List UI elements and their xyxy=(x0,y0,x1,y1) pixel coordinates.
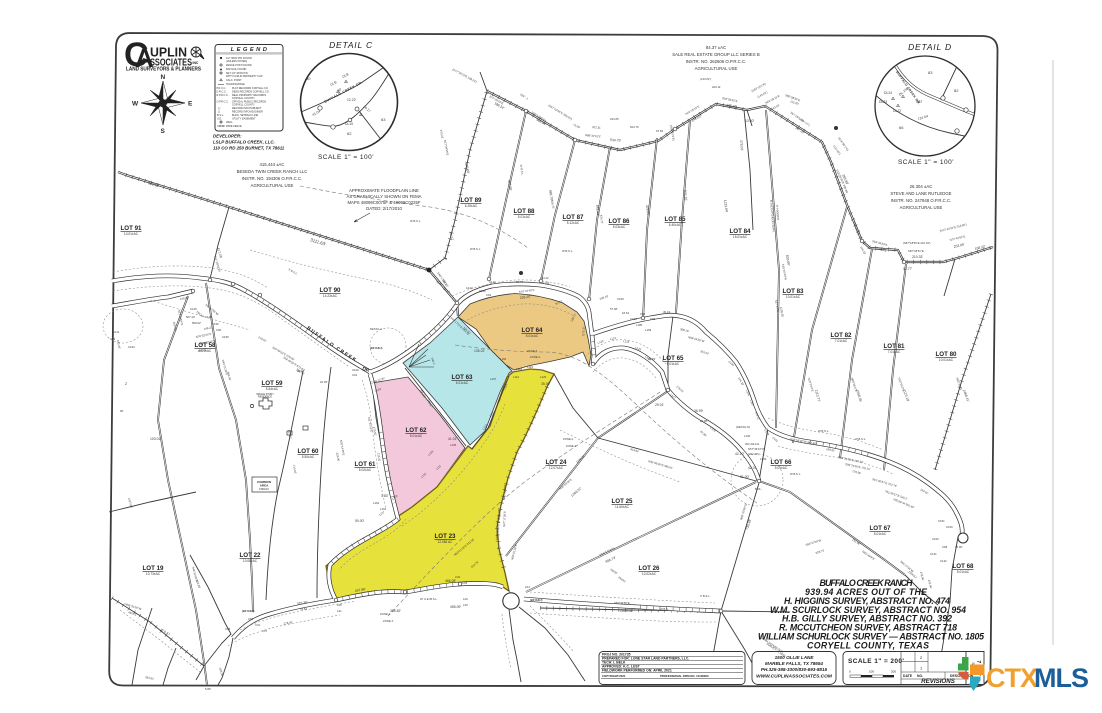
svg-text:7.01±AC: 7.01±AC xyxy=(888,350,901,354)
svg-text:C37: C37 xyxy=(262,629,268,633)
svg-text:C94: C94 xyxy=(640,312,646,316)
svg-text:(BF R&U): (BF R&U) xyxy=(530,598,542,602)
svg-text:S87°34'59"E: S87°34'59"E xyxy=(614,601,630,605)
svg-text:INSTR. NO. 262606 O.P.R.C.C: INSTR. NO. 262606 O.P.R.C.C. xyxy=(686,59,747,64)
svg-text:90: 90 xyxy=(306,76,311,81)
svg-text:WWW.CUPLINASSOCIATES.COM: WWW.CUPLINASSOCIATES.COM xyxy=(756,674,833,680)
svg-text:508.62': 508.62' xyxy=(192,321,202,325)
svg-text:SALE REAL ESTATE GROUP LLC: SALE REAL ESTATE GROUP LLC SERIES B xyxy=(672,52,760,57)
svg-text:LSLP BUFFALO CREEK, LLC.: LSLP BUFFALO CREEK, LLC. xyxy=(213,140,275,145)
svg-text:L133: L133 xyxy=(760,457,767,461)
svg-text:ZONE X: ZONE X xyxy=(383,619,394,623)
svg-text:ZONE A: ZONE A xyxy=(563,437,573,441)
svg-text:(143.02'): (143.02') xyxy=(700,77,711,81)
svg-text:R.P.R.C.C.: R.P.R.C.C. xyxy=(217,94,229,97)
svg-text:5.01±AC: 5.01±AC xyxy=(456,381,469,385)
svg-text:ZONE A: ZONE A xyxy=(380,612,390,616)
svg-text:Z: Z xyxy=(125,382,127,386)
svg-text:S: S xyxy=(161,128,166,135)
svg-text:LOT 60: LOT 60 xyxy=(298,448,320,455)
svg-text:WITH CUPLIN PROPERTY CAP: WITH CUPLIN PROPERTY CAP xyxy=(226,75,263,78)
svg-text:UTILITY EASEMENT: UTILITY EASEMENT xyxy=(232,118,256,121)
svg-text:220.11': 220.11' xyxy=(712,85,721,89)
svg-text:LOT 82: LOT 82 xyxy=(831,332,853,339)
svg-text:E: E xyxy=(188,101,193,108)
svg-text:C106: C106 xyxy=(630,317,637,321)
svg-text:202.20: 202.20 xyxy=(745,442,754,446)
svg-text:14.23±AC: 14.23±AC xyxy=(323,294,338,298)
svg-text:35.00': 35.00' xyxy=(955,545,963,549)
svg-text:LOT 63: LOT 63 xyxy=(452,374,474,381)
svg-text:103.01': 103.01' xyxy=(150,437,161,441)
svg-text:0.80±AC: 0.80±AC xyxy=(259,487,269,491)
svg-text:1009.52': 1009.52' xyxy=(620,609,633,613)
svg-text:5.01±AC: 5.01±AC xyxy=(667,362,680,366)
svg-text:C90: C90 xyxy=(216,328,222,332)
svg-text:57.08': 57.08' xyxy=(610,307,618,311)
svg-text:26.304 ±AC: 26.304 ±AC xyxy=(910,184,933,189)
svg-text:10.01±AC: 10.01±AC xyxy=(939,358,954,362)
svg-text:23.98': 23.98' xyxy=(700,419,708,423)
svg-text:LOT 67: LOT 67 xyxy=(870,525,892,532)
svg-text:(202.20'): (202.20') xyxy=(748,452,759,456)
svg-text:C58: C58 xyxy=(225,627,231,631)
svg-text:42.10': 42.10' xyxy=(735,452,744,456)
svg-text:MLS: MLS xyxy=(1034,663,1088,693)
svg-text:135.02': 135.02' xyxy=(474,349,485,353)
svg-text:C32: C32 xyxy=(455,575,461,579)
svg-text:42.01: 42.01 xyxy=(748,466,757,470)
svg-text:INSTR. NO. 194306 O.P.R.C.C: INSTR. NO. 194306 O.P.R.C.C. xyxy=(242,176,303,181)
svg-text:C87: C87 xyxy=(916,100,922,104)
svg-text:LOT 62: LOT 62 xyxy=(406,427,428,434)
svg-text:SCALE 1" = 200': SCALE 1" = 200' xyxy=(848,658,904,665)
svg-text:LOT 19: LOT 19 xyxy=(143,565,165,572)
svg-text:C66: C66 xyxy=(248,617,254,621)
svg-text:L118: L118 xyxy=(516,367,522,371)
svg-text:LOT 22: LOT 22 xyxy=(240,552,262,559)
svg-text:6.40±AC: 6.40±AC xyxy=(669,223,682,227)
svg-text:L185: L185 xyxy=(636,323,643,327)
svg-text:ZONE X: ZONE X xyxy=(527,349,538,353)
svg-text:ZONE X: ZONE X xyxy=(566,444,577,448)
svg-text:INSTR. NO. 247848 O.P.R.C.C: INSTR. NO. 247848 O.P.R.C.C. xyxy=(891,198,952,203)
svg-text:15.01±AC: 15.01±AC xyxy=(733,235,748,239)
svg-text:C150: C150 xyxy=(946,525,953,529)
svg-text:00': 00' xyxy=(120,409,124,413)
svg-text:BUF...: BUF... xyxy=(755,487,763,491)
svg-text:LOT 88: LOT 88 xyxy=(514,208,536,215)
svg-text:C98: C98 xyxy=(942,545,948,549)
svg-text:N07°17'28"E: N07°17'28"E xyxy=(502,511,507,527)
svg-text:5.50±AC: 5.50±AC xyxy=(302,455,315,459)
svg-text:LOT 65: LOT 65 xyxy=(663,355,685,362)
svg-text:L165: L165 xyxy=(450,443,457,447)
svg-text:10.02±AC: 10.02±AC xyxy=(642,572,657,576)
svg-text:HOLDING/PAGE: HOLDING/PAGE xyxy=(226,83,245,86)
svg-text:5.03±AC: 5.03±AC xyxy=(613,225,626,229)
svg-text:C159: C159 xyxy=(222,335,229,339)
svg-text:C144: C144 xyxy=(205,315,212,319)
svg-text:5.01±AC: 5.01±AC xyxy=(957,570,970,574)
svg-text:C92: C92 xyxy=(486,293,492,297)
svg-text:CALC. POINT: CALC. POINT xyxy=(226,79,242,82)
svg-text:C89: C89 xyxy=(110,337,116,341)
svg-text:L120: L120 xyxy=(540,375,547,379)
svg-text:50.00': 50.00' xyxy=(355,519,364,523)
svg-text:C105: C105 xyxy=(617,297,624,301)
svg-text:C132: C132 xyxy=(940,559,947,563)
svg-text:INC: INC xyxy=(193,61,199,65)
svg-text:W B.S.L.: W B.S.L. xyxy=(855,437,866,441)
svg-text:CORYELL COUNTY, TEXAS: CORYELL COUNTY, TEXAS xyxy=(807,641,929,651)
svg-text:PROFESSIONAL FIRM NO. 10126: PROFESSIONAL FIRM NO. 10126900 xyxy=(660,674,709,678)
svg-text:C111: C111 xyxy=(113,330,120,334)
svg-text:41.01': 41.01' xyxy=(448,437,457,441)
svg-text:385.82': 385.82' xyxy=(390,609,401,613)
svg-text:C91: C91 xyxy=(352,373,358,377)
svg-text:L169: L169 xyxy=(645,328,652,332)
svg-text:C95: C95 xyxy=(650,317,656,321)
svg-text:75.52: 75.52 xyxy=(300,607,307,611)
svg-text:(DETAIL D): (DETAIL D) xyxy=(736,425,750,429)
svg-text:202.31: 202.31 xyxy=(592,125,601,130)
svg-text:5.80': 5.80' xyxy=(205,687,211,691)
svg-text:W: W xyxy=(132,101,139,108)
svg-text:CTX: CTX xyxy=(986,663,1038,693)
svg-text:81.77: 81.77 xyxy=(516,280,523,284)
svg-text:DETAIL C: DETAIL C xyxy=(370,327,382,331)
svg-text:W B.S.L.: W B.S.L. xyxy=(562,249,573,253)
svg-text:1500 OLLIE LANE: 1500 OLLIE LANE xyxy=(775,655,815,660)
svg-text:WIRE FENCE: WIRE FENCE xyxy=(226,125,242,128)
svg-text:534.79': 534.79' xyxy=(610,138,622,143)
svg-text:DETAIL C: DETAIL C xyxy=(329,40,373,50)
svg-text:97.83: 97.83 xyxy=(656,129,663,133)
svg-text:13.60': 13.60' xyxy=(745,119,754,123)
svg-text:10.01±AC: 10.01±AC xyxy=(124,232,139,236)
svg-text:5.54±AC: 5.54±AC xyxy=(266,387,279,391)
svg-text:5.01±AC: 5.01±AC xyxy=(874,532,887,536)
svg-text:(275.3'): (275.3') xyxy=(581,326,586,336)
svg-text:L31: L31 xyxy=(337,609,342,613)
svg-text:36.99': 36.99' xyxy=(694,409,703,413)
svg-text:62: 62 xyxy=(347,131,352,136)
svg-text:RESIDENCE: RESIDENCE xyxy=(258,396,272,399)
svg-text:C143: C143 xyxy=(466,286,473,290)
svg-text:3.83': 3.83' xyxy=(381,494,389,498)
svg-text:LOT 81: LOT 81 xyxy=(884,343,906,350)
svg-text:W B.S.L.: W B.S.L. xyxy=(410,219,421,223)
svg-text:LEGEND: LEGEND xyxy=(231,47,270,53)
svg-text:18.64: 18.64 xyxy=(622,311,629,315)
svg-text:PH.325-388-3300/830-693-8815: PH.325-388-3300/830-693-8815 xyxy=(761,667,828,672)
svg-text:L131: L131 xyxy=(753,442,760,446)
svg-text:LOT 80: LOT 80 xyxy=(936,351,958,358)
svg-text:DL23: DL23 xyxy=(879,100,887,104)
svg-text:C109: C109 xyxy=(352,368,359,372)
svg-text:AGRICULTURAL USE: AGRICULTURAL USE xyxy=(900,205,943,210)
svg-text:455.09': 455.09' xyxy=(450,605,461,609)
svg-text:L130: L130 xyxy=(744,434,751,438)
svg-text:10.01±AC: 10.01±AC xyxy=(786,295,801,299)
svg-text:C150: C150 xyxy=(212,322,219,326)
svg-text:(S87°18'56"E 210.33'): (S87°18'56"E 210.33') xyxy=(903,241,931,245)
svg-text:LOT 68: LOT 68 xyxy=(953,563,975,570)
svg-text:O.P.R.C.C.: O.P.R.C.C. xyxy=(217,101,229,104)
svg-text:C131: C131 xyxy=(930,552,937,556)
svg-text:L112: L112 xyxy=(513,375,519,379)
svg-text:DL10: DL10 xyxy=(345,122,353,126)
svg-text:12.084 AC: 12.084 AC xyxy=(438,540,454,544)
svg-text:AGRICULTURAL USE: AGRICULTURAL USE xyxy=(251,183,294,188)
svg-text:STEVE AND LANE RUTLEDGE: STEVE AND LANE RUTLEDGE xyxy=(890,191,951,196)
svg-text:5.01±AC: 5.01±AC xyxy=(526,334,539,338)
svg-text:507.23': 507.23' xyxy=(186,315,196,319)
svg-text:415.444 ±AC: 415.444 ±AC xyxy=(259,162,284,167)
svg-text:DEVELOPER:: DEVELOPER: xyxy=(213,134,242,139)
svg-text:LOT 61: LOT 61 xyxy=(355,461,377,468)
svg-text:FENCE POST FOUND: FENCE POST FOUND xyxy=(226,64,252,67)
svg-text:AREA: AREA xyxy=(260,484,269,488)
svg-text:LOT 26: LOT 26 xyxy=(639,565,661,572)
svg-text:5.02±AC: 5.02±AC xyxy=(359,468,372,472)
svg-text:45.34: 45.34 xyxy=(663,310,670,314)
svg-text:524.79: 524.79 xyxy=(630,125,639,129)
svg-text:200: 200 xyxy=(891,670,896,674)
svg-text:3' B.S.L.: 3' B.S.L. xyxy=(700,594,711,598)
svg-text:LOT 89: LOT 89 xyxy=(461,197,483,204)
svg-text:22.39': 22.39' xyxy=(320,380,328,384)
svg-text:LOT 86: LOT 86 xyxy=(609,218,631,225)
svg-text:234.65: 234.65 xyxy=(610,117,619,121)
svg-text:L30: L30 xyxy=(463,603,468,607)
svg-text:C151: C151 xyxy=(938,519,945,523)
svg-text:APPROXIMATE FLOODPLAIN LINE: APPROXIMATE FLOODPLAIN LINE xyxy=(349,188,419,193)
svg-text:SCALE 1" = 100': SCALE 1" = 100' xyxy=(898,159,954,166)
svg-text:W B.S.L.: W B.S.L. xyxy=(470,247,481,251)
svg-text:LOT 90: LOT 90 xyxy=(320,287,342,294)
svg-text:466.08': 466.08' xyxy=(445,579,456,583)
svg-text:LOT 25: LOT 25 xyxy=(612,498,634,505)
svg-text:DATE: DATE xyxy=(903,674,913,678)
svg-text:C36: C36 xyxy=(462,581,468,585)
svg-text:12.07±AC: 12.07±AC xyxy=(549,466,564,470)
svg-text:(UNLESS NOTED): (UNLESS NOTED) xyxy=(226,60,247,63)
svg-text:MARBLE FALLS, TX 78654: MARBLE FALLS, TX 78654 xyxy=(765,661,823,666)
svg-text:L29: L29 xyxy=(463,597,468,601)
svg-text:LOT 84: LOT 84 xyxy=(730,228,752,235)
svg-text:7.01±AC: 7.01±AC xyxy=(835,339,848,343)
svg-text:SCALE 1" = 100': SCALE 1" = 100' xyxy=(318,154,374,161)
svg-text:LOT 83: LOT 83 xyxy=(783,288,805,295)
svg-text:W' U.E./B.S.L.: W' U.E./B.S.L. xyxy=(420,597,438,601)
svg-text:LAND SURVEYORS & PLANNERS: LAND SURVEYORS & PLANNERS xyxy=(126,67,202,73)
svg-text:W B.S..: W B.S.. xyxy=(660,607,670,611)
svg-text:LOT 66: LOT 66 xyxy=(771,459,793,466)
svg-text:20.42': 20.42' xyxy=(297,369,305,373)
svg-text:29.01': 29.01' xyxy=(655,403,664,407)
svg-text:AS GRAPHICALLY SHOWN ON FE: AS GRAPHICALLY SHOWN ON FEMA xyxy=(346,194,421,199)
svg-text:5.01±AC: 5.01±AC xyxy=(410,434,423,438)
svg-text:(BF R&U): (BF R&U) xyxy=(242,609,254,613)
svg-text:L161: L161 xyxy=(380,507,387,511)
svg-text:FIELDWORK PERFORMED ON: APR: FIELDWORK PERFORMED ON: APRIL 2021 xyxy=(602,669,672,673)
svg-text:5.01±AC: 5.01±AC xyxy=(775,466,788,470)
svg-text:C102: C102 xyxy=(932,537,939,541)
svg-text:110 CO RD 250 BURNET, TX 78611: 110 CO RD 250 BURNET, TX 78611 xyxy=(213,146,285,151)
svg-text:WELL: WELL xyxy=(226,121,233,124)
svg-text:5.12±AC: 5.12±AC xyxy=(567,221,580,225)
svg-text:C154: C154 xyxy=(128,345,135,349)
svg-text:31.00': 31.00' xyxy=(740,475,749,479)
svg-text:LOT 64: LOT 64 xyxy=(522,327,544,334)
svg-text:W B.S.L.: W B.S.L. xyxy=(790,472,801,476)
svg-text:ZONE A: ZONE A xyxy=(530,355,540,359)
svg-text:6.25±AC: 6.25±AC xyxy=(465,204,478,208)
svg-text:L28: L28 xyxy=(337,603,342,607)
svg-text:N57°36'16"W: N57°36'16"W xyxy=(748,447,765,451)
svg-text:5.01±AC: 5.01±AC xyxy=(518,215,531,219)
svg-text:(BF R&U): (BF R&U) xyxy=(370,346,382,350)
svg-text:LOT 85: LOT 85 xyxy=(665,216,687,223)
svg-text:210.33': 210.33' xyxy=(912,255,923,259)
svg-text:COPYRIGHT:2021: COPYRIGHT:2021 xyxy=(602,674,626,678)
svg-text:63: 63 xyxy=(381,117,386,122)
svg-text:C31: C31 xyxy=(255,623,261,627)
svg-text:L54: L54 xyxy=(525,585,530,589)
svg-text:DL24: DL24 xyxy=(884,91,892,95)
svg-text:10.73±AC: 10.73±AC xyxy=(146,572,161,576)
svg-text:10.08±AC: 10.08±AC xyxy=(243,559,258,563)
svg-text:100: 100 xyxy=(869,670,874,674)
svg-text:LOT 24: LOT 24 xyxy=(546,459,568,466)
svg-text:L162: L162 xyxy=(373,501,380,505)
svg-text:LOT 87: LOT 87 xyxy=(563,214,585,221)
svg-text:U.E.: U.E. xyxy=(217,118,222,121)
svg-text:AGRICULTURAL USE: AGRICULTURAL USE xyxy=(695,66,738,71)
svg-text:LOT 59: LOT 59 xyxy=(262,380,284,387)
svg-text:MAPS 48099C0075F & 48099C02: MAPS 48099C0075F & 48099C0225F xyxy=(347,200,420,205)
svg-text:DL22: DL22 xyxy=(893,109,901,113)
svg-text:W B.S.L.: W B.S.L. xyxy=(818,429,829,433)
svg-text:DETAIL D: DETAIL D xyxy=(908,42,952,52)
svg-text:L166: L166 xyxy=(500,357,507,361)
svg-text:82: 82 xyxy=(954,88,959,93)
svg-text:BESEDA TWIN CREEK RANCH LLC: BESEDA TWIN CREEK RANCH LLC xyxy=(237,169,308,174)
svg-text:REVISIONS: REVISIONS xyxy=(921,678,956,685)
svg-text:35.00': 35.00' xyxy=(541,382,550,386)
svg-text:60D NAIL FOUND: 60D NAIL FOUND xyxy=(226,68,247,71)
svg-text:11.60±AC: 11.60±AC xyxy=(615,505,630,509)
svg-text:LOT 23: LOT 23 xyxy=(435,533,457,540)
svg-text:LOT 91: LOT 91 xyxy=(121,225,143,232)
svg-text:S87°18'51"E: S87°18'51"E xyxy=(908,249,924,253)
svg-text:66: 66 xyxy=(899,125,904,130)
svg-text:83: 83 xyxy=(928,70,933,75)
svg-text:DATED: 2/17/2010: DATED: 2/17/2010 xyxy=(366,206,402,211)
svg-text:L119: L119 xyxy=(527,365,533,369)
svg-text:L167: L167 xyxy=(490,377,497,381)
svg-text:N: N xyxy=(161,74,166,81)
svg-text:12.22': 12.22' xyxy=(347,98,356,102)
svg-text:12.77': 12.77' xyxy=(903,267,912,271)
svg-text:84.37 ±AC: 84.37 ±AC xyxy=(706,45,726,50)
svg-text:L191: L191 xyxy=(543,281,550,285)
